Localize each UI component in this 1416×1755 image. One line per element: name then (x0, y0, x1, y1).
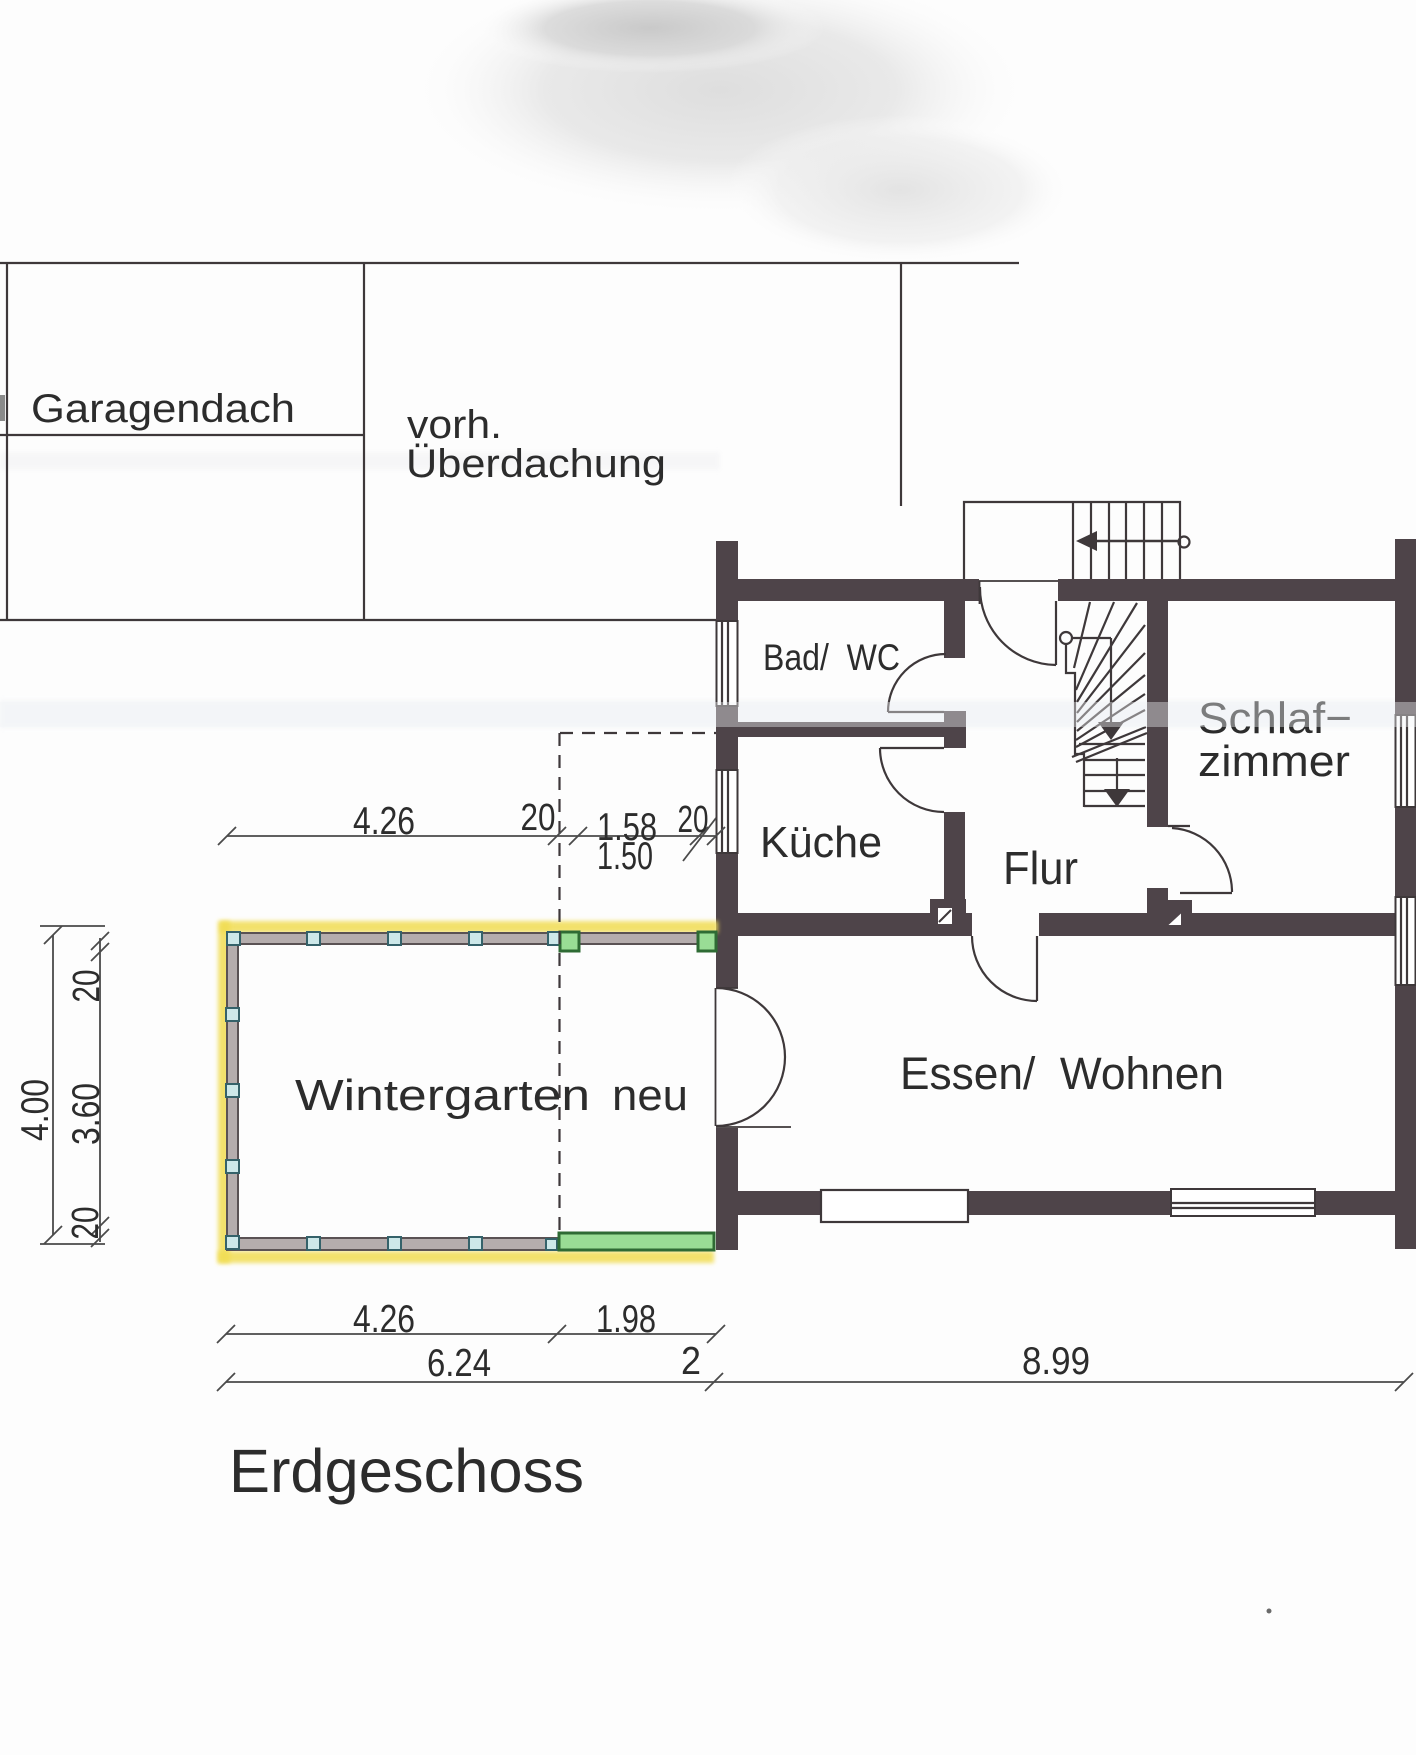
svg-text:20: 20 (521, 797, 556, 839)
svg-text:neu: neu (612, 1071, 688, 1120)
svg-text:3.60: 3.60 (65, 1083, 108, 1145)
svg-text:6.24: 6.24 (427, 1342, 491, 1385)
svg-text:Garagendach: Garagendach (31, 387, 295, 431)
svg-text:Flur: Flur (1003, 842, 1078, 894)
svg-text:Überdachung: Überdachung (406, 442, 666, 486)
svg-text:Essen/ Wohnen: Essen/ Wohnen (900, 1048, 1224, 1099)
svg-text:4.26: 4.26 (353, 800, 415, 843)
svg-text:Bad/ WC: Bad/ WC (763, 637, 900, 678)
svg-text:zimmer: zimmer (1198, 737, 1350, 786)
svg-text:Küche: Küche (760, 818, 882, 867)
svg-text:Erdgeschoss: Erdgeschoss (229, 1437, 584, 1505)
svg-text:1.98: 1.98 (596, 1298, 656, 1341)
svg-text:4.00: 4.00 (14, 1079, 57, 1141)
svg-text:20: 20 (66, 970, 108, 1003)
svg-text:20: 20 (65, 1207, 107, 1240)
svg-text:8.99: 8.99 (1022, 1340, 1090, 1383)
svg-text:20: 20 (678, 799, 709, 841)
svg-text:4.26: 4.26 (353, 1298, 415, 1341)
svg-text:Wintergarten: Wintergarten (295, 1071, 590, 1120)
svg-text:1.50: 1.50 (597, 835, 653, 878)
svg-text:vorh.: vorh. (407, 403, 502, 447)
svg-text:2: 2 (681, 1340, 701, 1383)
